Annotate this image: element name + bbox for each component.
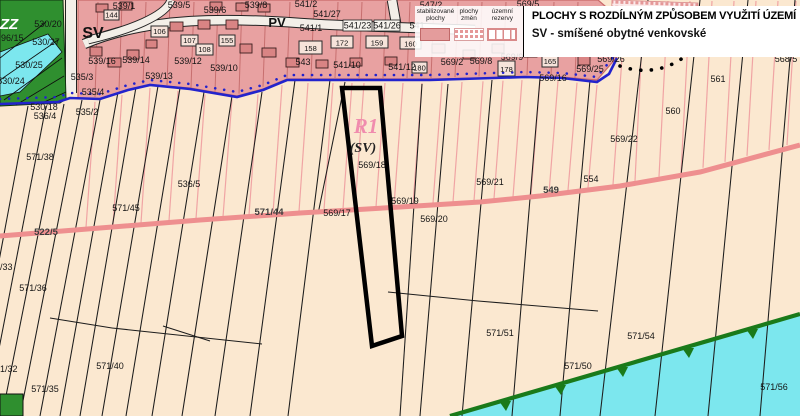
parcel-label: 569/19 [391, 196, 419, 206]
legend-col-changes: plochy změn [452, 8, 485, 55]
parcel-label: 541/1 [300, 23, 323, 33]
green-patch [0, 394, 23, 416]
parcel-label: 536/4 [34, 111, 57, 121]
parcel-label: 571/50 [564, 361, 592, 371]
parcel-label: 539/10 [210, 63, 238, 73]
parcel-label: 569/2 [441, 57, 464, 67]
legend-pattern-columns: stabilizované plochy plochy změn územní … [415, 6, 523, 57]
parcel-label: 569/17 [323, 208, 351, 218]
parcel-label: 560 [665, 106, 680, 116]
parcel-label: 539/6 [204, 5, 227, 15]
legend-main: PLOCHY S ROZDÍLNÝM ZPŮSOBEM VYUŽITÍ ÚZEM… [523, 6, 800, 57]
parcel-label: 569/18 [358, 160, 386, 170]
parcel-label: 569/22 [610, 134, 638, 144]
area-label-sv: SV [82, 25, 104, 42]
parcel-label: 536/5 [178, 179, 201, 189]
legend-col-label: územní rezervy [486, 8, 519, 27]
parcel-label: 541/10 [333, 60, 361, 70]
stabilized-swatch [420, 28, 450, 41]
legend-title: PLOCHY S ROZDÍLNÝM ZPŮSOBEM VYUŽITÍ ÚZEM… [532, 10, 796, 22]
house-number: 158 [304, 44, 317, 53]
parcel-label: 571/45 [112, 203, 140, 213]
changes-swatch [454, 28, 484, 41]
parcel-label: 539/14 [122, 55, 150, 65]
zoning-map-canvas: ZZ SV PV R1 (SV) 539/1 539/5 539/6 539/8… [0, 0, 800, 416]
house-number: 155 [221, 36, 234, 45]
parcel-label: 539/16 [88, 56, 116, 66]
parcel-label: 539/8 [245, 0, 268, 10]
parcel-label: 539/13 [145, 71, 173, 81]
parcel-label: 569/21 [476, 177, 504, 187]
area-label-zz: ZZ [0, 16, 19, 33]
road-parcel-label: 571/44 [254, 207, 284, 218]
house-number: 165 [544, 57, 557, 66]
parcel-label: 571/56 [760, 382, 788, 392]
road-label: 541/26 [373, 21, 401, 31]
r1-type-label: (SV) [350, 141, 376, 156]
road-label: 541/23 [344, 21, 372, 31]
parcel-label: 569/8 [470, 56, 493, 66]
road-parcel-label: 522/5 [34, 227, 58, 238]
map-legend: stabilizované plochy plochy změn územní … [415, 6, 800, 57]
parcel-label: 571/33 [0, 262, 13, 272]
parcel-label: 535/4 [82, 87, 105, 97]
parcel-label: 541/2 [295, 0, 318, 9]
parcel-label: 530/20 [34, 19, 62, 29]
road-parcel-label: 549 [543, 185, 559, 196]
parcel-label: 535/2 [76, 107, 99, 117]
parcel-label: 543 [295, 57, 310, 67]
parcel-label: 569/16 [539, 73, 567, 83]
parcel-label: 571/40 [96, 361, 124, 371]
parcel-label: 571/54 [627, 331, 655, 341]
parcel-label: 539/12 [174, 56, 202, 66]
house-number: 172 [336, 39, 349, 48]
house-number: 107 [183, 36, 196, 45]
parcel-label: 530/25 [15, 60, 43, 70]
parcel-label: 539/1 [113, 1, 136, 11]
house-number: 144 [105, 11, 118, 20]
legend-entry-sv: SV - smíšené obytné venkovské [532, 28, 796, 40]
house-number: 180 [413, 64, 426, 73]
parcel-label: 541/27 [313, 9, 341, 19]
parcel-label: 539/5 [168, 0, 191, 10]
legend-col-stabilized: stabilizované plochy [419, 8, 452, 55]
house-number: 178 [500, 65, 513, 74]
parcel-label: 554 [583, 174, 598, 184]
parcel-label: 571/32 [0, 364, 18, 374]
house-number: 106 [153, 27, 166, 36]
legend-col-label: stabilizované plochy [417, 8, 455, 27]
parcel-label: 561 [710, 74, 725, 84]
r1-label: R1 [353, 114, 379, 138]
parcel-label: 530/27 [32, 37, 60, 47]
area-label-pv: PV [268, 15, 286, 30]
parcel-label: 571/36 [19, 283, 47, 293]
parcel-label: 571/35 [31, 384, 59, 394]
parcel-label: 569/25 [576, 64, 604, 74]
parcel-label: 569/20 [420, 214, 448, 224]
parcel-label: 535/3 [71, 72, 94, 82]
parcel-label: 541/12 [388, 62, 416, 72]
legend-col-reserves: územní rezervy [486, 8, 519, 55]
reserves-swatch [487, 28, 517, 41]
parcel-label: 530/24 [0, 76, 25, 86]
parcel-label: 571/38 [26, 152, 54, 162]
parcel-label: 96/15 [1, 33, 24, 43]
house-number: 159 [371, 39, 384, 48]
legend-col-label: plochy změn [452, 8, 485, 27]
house-number: 108 [198, 45, 211, 54]
parcel-label: 571/51 [486, 328, 514, 338]
